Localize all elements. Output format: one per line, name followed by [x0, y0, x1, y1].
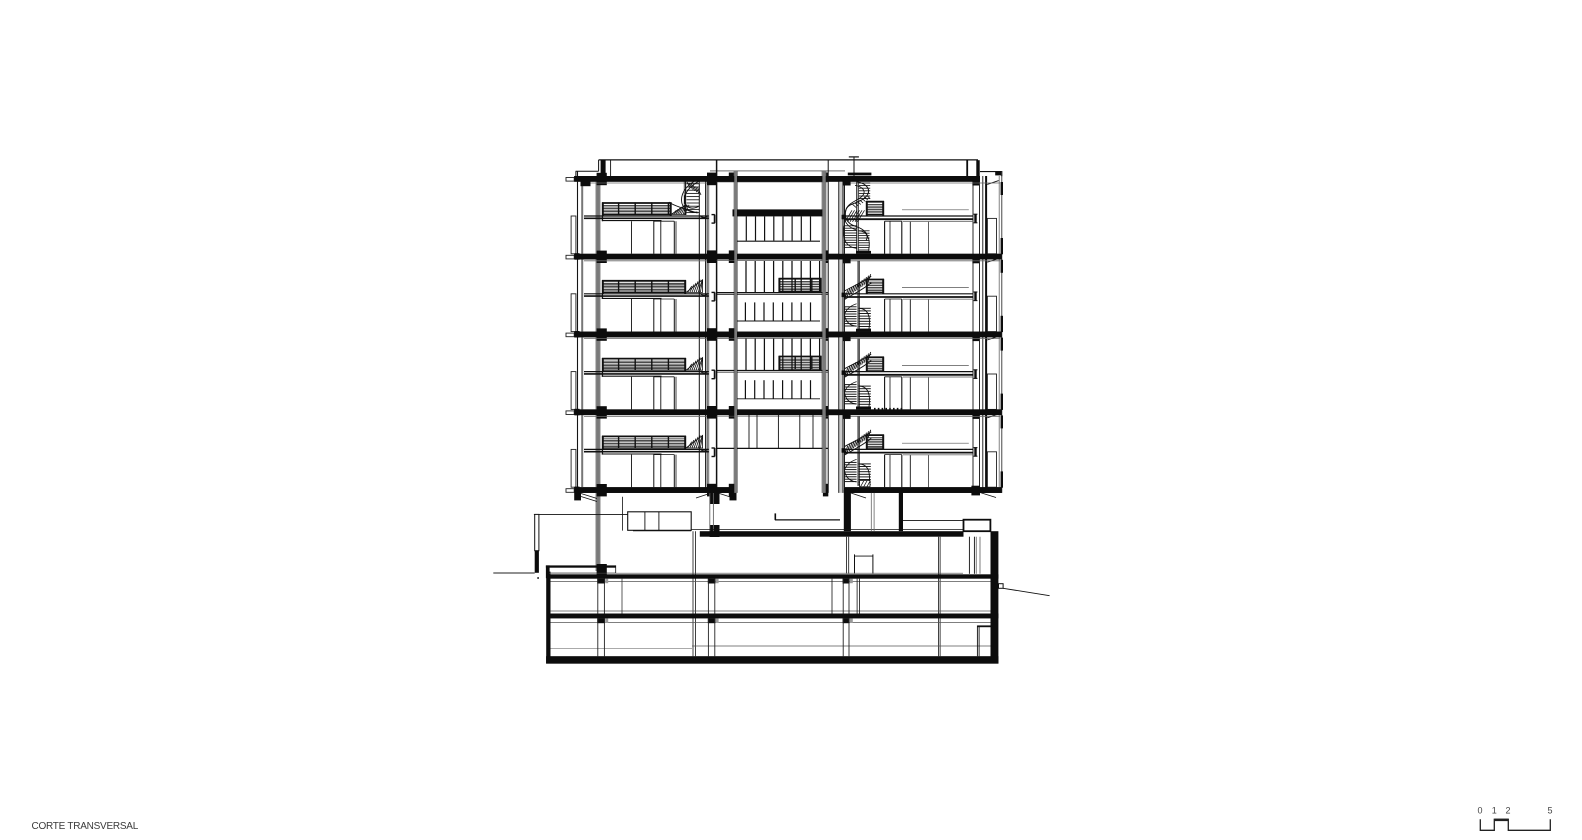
svg-text:2: 2	[1506, 806, 1511, 816]
svg-text:0: 0	[1478, 806, 1483, 816]
svg-text:1: 1	[1492, 806, 1497, 816]
svg-text:5: 5	[1548, 806, 1553, 816]
svg-text:CORTE TRANSVERSAL: CORTE TRANSVERSAL	[32, 821, 139, 832]
